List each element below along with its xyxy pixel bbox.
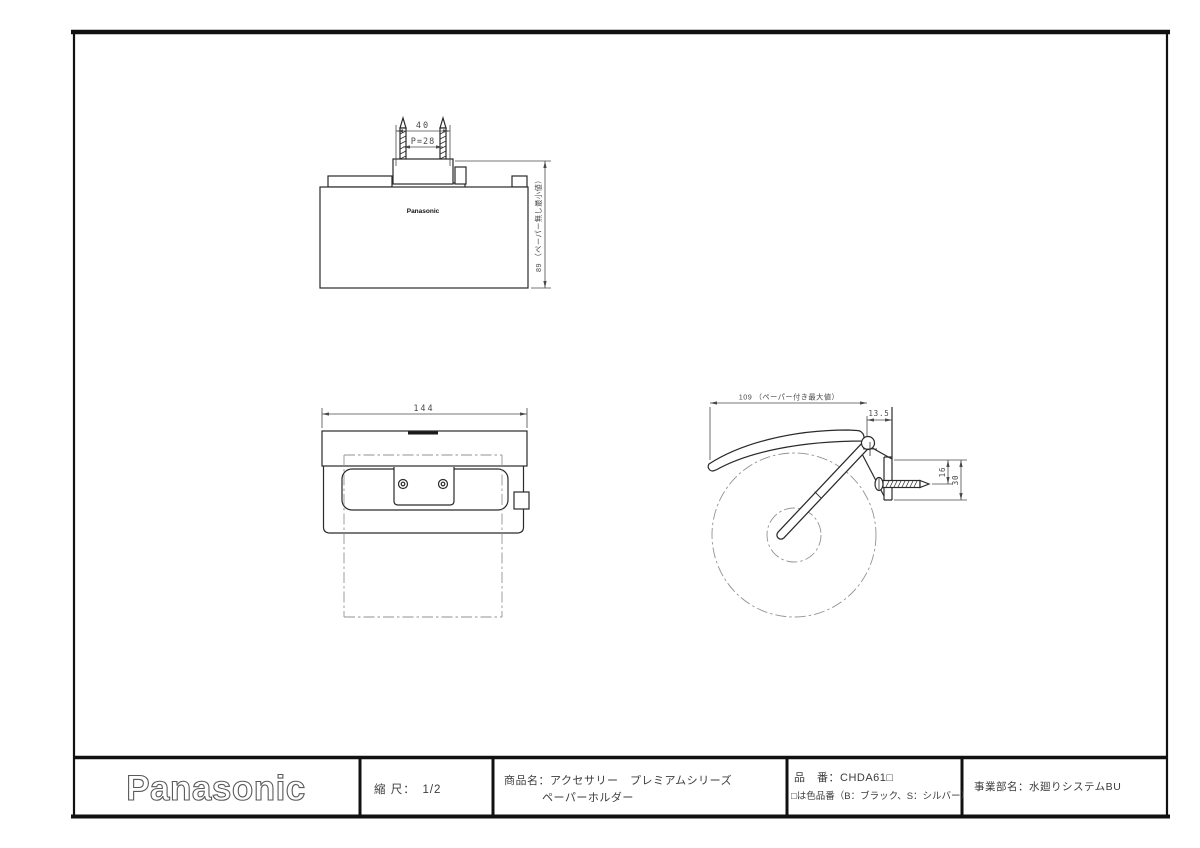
title-part-number: 品 番：CHDA61□ — [794, 771, 894, 784]
side-support-arm — [781, 447, 864, 535]
title-scale: 縮 尺： 1/2 — [374, 782, 441, 796]
dim-hinge-offset: 13.5 — [868, 409, 889, 418]
dim-width: 144 — [413, 404, 434, 414]
side-view — [708, 407, 929, 535]
dim-screw-span: 40 — [416, 121, 430, 131]
dim-screw-pitch: P=28 — [411, 137, 435, 147]
title-block: Panasonic 縮 尺： 1/2 商品名：アクセサリー プレミアムシリーズ … — [126, 769, 1121, 808]
dim-screw-height: 16 — [938, 467, 947, 478]
front-cover — [322, 431, 527, 466]
title-product-line2: ペーパーホルダー — [542, 790, 634, 804]
dim-depth-min: 89 （ペーパー無し最小値） — [534, 176, 543, 272]
front-hook — [514, 492, 529, 509]
side-paper-roll-phantom — [712, 453, 876, 617]
plan-rear-strip-right — [512, 176, 527, 187]
front-cover-slot — [408, 432, 438, 435]
plan-brand-mark: Panasonic — [407, 208, 440, 215]
plan-rear-strip-left — [328, 176, 392, 187]
front-view — [322, 431, 529, 533]
drawing-frame — [71, 30, 1170, 818]
side-hinge-knuckle — [862, 437, 875, 450]
plan-clip-tab — [455, 167, 466, 184]
title-part-number-note: □は色品番（B：ブラック、S：シルバー） — [791, 790, 970, 802]
title-division: 事業部名：水廻りシステムBU — [974, 780, 1121, 793]
plan-cover-body — [320, 187, 528, 288]
side-roll-outer — [712, 453, 876, 617]
panasonic-logo: Panasonic — [126, 769, 306, 808]
dim-depth-max: 109 （ペーパー付き最大値） — [739, 393, 839, 402]
drawing-canvas: Panasonic 40 P=28 89 （ペーパー無し最小値） — [0, 0, 1200, 848]
drawing-page: Panasonic 40 P=28 89 （ペーパー無し最小値） — [0, 0, 1200, 848]
plan-mounting-bracket — [393, 159, 453, 184]
dim-plate-height: 30 — [951, 475, 960, 486]
title-product-line1: 商品名：アクセサリー プレミアムシリーズ — [504, 773, 732, 787]
side-wall-screw — [875, 478, 929, 491]
